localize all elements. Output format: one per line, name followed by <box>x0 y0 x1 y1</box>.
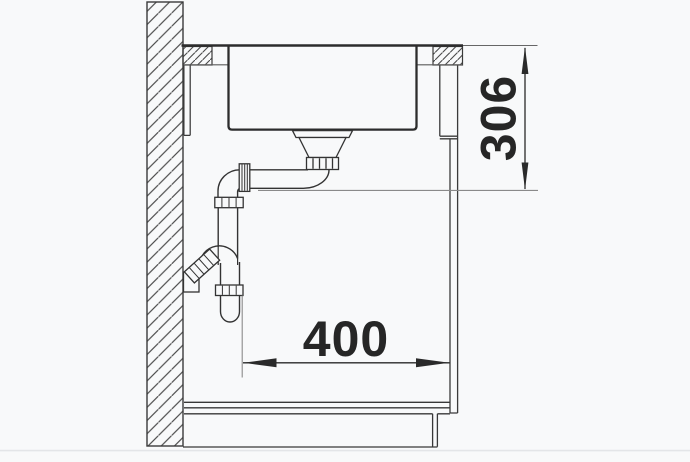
cabinet-back-rail <box>184 66 190 136</box>
siphon-trap <box>184 246 244 322</box>
door-inner-face <box>450 139 458 413</box>
trap-body-walls <box>221 262 240 285</box>
dimension-400: 400 <box>242 296 449 378</box>
drain-strainer <box>293 131 353 170</box>
arrow-up-icon <box>522 47 529 74</box>
pipe-coupling-nut <box>239 164 250 192</box>
installation-drawing: 306 400 <box>0 0 690 462</box>
cabinet-front <box>440 66 458 414</box>
dimension-306-label: 306 <box>471 75 527 161</box>
wall-section <box>147 2 183 446</box>
strainer-locknut <box>307 158 339 170</box>
arrow-left-icon <box>243 358 276 367</box>
dimension-400-label: 400 <box>303 311 389 367</box>
plinth-face <box>433 414 438 447</box>
sink-bowl <box>229 46 417 130</box>
trap-outlet-coupling <box>184 249 219 283</box>
countertop-left-cut <box>183 47 212 66</box>
trap-inlet-inside <box>218 247 237 265</box>
down-pipe <box>218 208 237 259</box>
drawing-canvas: 306 400 <box>0 0 690 462</box>
arrow-right-icon <box>416 358 449 367</box>
dimension-306: 306 <box>258 46 538 191</box>
arrow-down-icon <box>522 163 529 190</box>
countertop <box>182 46 464 66</box>
trap-cup <box>221 296 240 323</box>
strainer-flange <box>293 131 353 138</box>
downpipe-union-nut <box>215 197 243 207</box>
drain-pipe <box>215 164 329 259</box>
strainer-funnel <box>299 138 346 158</box>
elbow-outer <box>218 170 240 198</box>
drawer-door-joint <box>440 136 458 139</box>
pipe-bottom-edge-bend <box>250 170 329 189</box>
bottom-shelf <box>184 402 450 408</box>
wall-hatch <box>147 2 183 446</box>
cabinet-bottom <box>183 402 450 447</box>
countertop-right-cut <box>433 47 463 66</box>
trap-union-nut <box>216 285 244 296</box>
